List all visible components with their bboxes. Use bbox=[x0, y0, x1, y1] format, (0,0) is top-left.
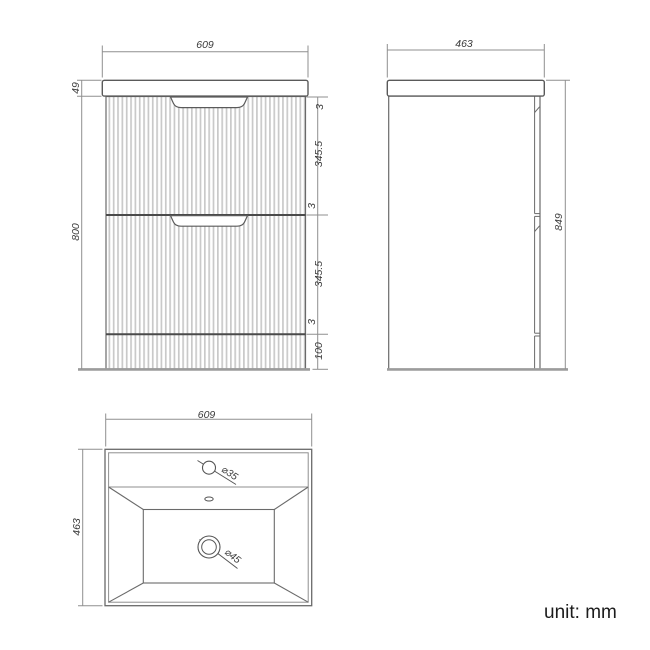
side-total-height-label: 849 bbox=[553, 213, 564, 231]
drawing-linework bbox=[0, 0, 650, 650]
front-segment-drawer-1-label: 345.5 bbox=[313, 140, 324, 166]
front-handle-notch-bottom bbox=[171, 216, 248, 227]
front-segment-gap-2-label: 3 bbox=[306, 203, 317, 209]
overflow-hole bbox=[205, 497, 213, 501]
side-view bbox=[387, 80, 568, 369]
front-view bbox=[78, 80, 310, 369]
technical-drawing-sheet: 609 49 800 3 345.5 3 345.5 3 100 463 849… bbox=[0, 0, 650, 650]
front-worktop-height-label: 49 bbox=[70, 82, 81, 94]
basin-depth-label: 463 bbox=[71, 518, 82, 536]
side-cabinet-body bbox=[389, 96, 540, 369]
front-segment-plinth-label: 100 bbox=[313, 342, 324, 360]
basin-top-view bbox=[105, 449, 312, 605]
front-cabinet-height-label: 800 bbox=[70, 223, 81, 241]
tap-hole bbox=[203, 461, 216, 474]
side-worktop bbox=[387, 80, 544, 96]
unit-note: unit: mm bbox=[544, 602, 617, 624]
basin-width-label: 609 bbox=[198, 409, 216, 420]
front-handle-notch-top bbox=[171, 97, 248, 108]
front-segment-gap-3-label: 3 bbox=[306, 319, 317, 325]
front-cabinet-body bbox=[106, 97, 306, 370]
front-width-label: 609 bbox=[196, 40, 214, 51]
front-segment-drawer-2-label: 345.5 bbox=[313, 261, 324, 287]
side-depth-label: 463 bbox=[455, 39, 473, 50]
front-worktop bbox=[102, 80, 308, 96]
front-segment-gap-1-label: 3 bbox=[314, 104, 325, 110]
